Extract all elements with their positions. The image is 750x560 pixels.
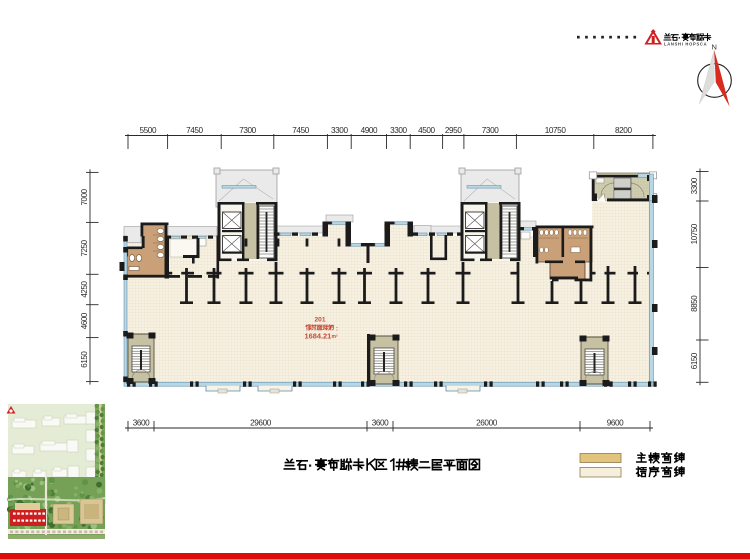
svg-text:26000: 26000	[476, 418, 498, 427]
svg-text:7300: 7300	[239, 126, 256, 135]
svg-text:3300: 3300	[331, 126, 348, 135]
svg-text:29600: 29600	[250, 418, 272, 427]
svg-text::: :	[336, 327, 338, 333]
svg-text:3600: 3600	[372, 418, 389, 427]
svg-text:5500: 5500	[139, 126, 156, 135]
svg-text:7450: 7450	[186, 126, 203, 135]
svg-text:3300: 3300	[690, 177, 699, 194]
svg-text:8850: 8850	[690, 295, 699, 312]
svg-text:8200: 8200	[615, 126, 632, 135]
svg-text:3300: 3300	[390, 126, 407, 135]
svg-text:9600: 9600	[607, 418, 624, 427]
svg-text:7000: 7000	[80, 188, 89, 205]
svg-text:7450: 7450	[292, 126, 309, 135]
svg-text:10750: 10750	[545, 126, 567, 135]
svg-text:7300: 7300	[482, 126, 499, 135]
svg-text:10750: 10750	[690, 223, 699, 244]
svg-text:3600: 3600	[133, 418, 150, 427]
svg-text:m²: m²	[332, 334, 338, 340]
svg-text:7250: 7250	[80, 239, 89, 256]
svg-text:4250: 4250	[80, 280, 89, 297]
svg-text:4900: 4900	[361, 126, 378, 135]
svg-text:4500: 4500	[418, 126, 435, 135]
svg-text:4600: 4600	[80, 312, 89, 329]
svg-text:N: N	[712, 43, 717, 52]
svg-text:6150: 6150	[690, 352, 699, 369]
svg-text:201: 201	[314, 317, 325, 324]
svg-text:2950: 2950	[445, 126, 462, 135]
svg-text:1684.21: 1684.21	[305, 332, 332, 341]
svg-text:LANSHI HOPSCA: LANSHI HOPSCA	[664, 42, 707, 47]
svg-text:6150: 6150	[80, 351, 89, 368]
